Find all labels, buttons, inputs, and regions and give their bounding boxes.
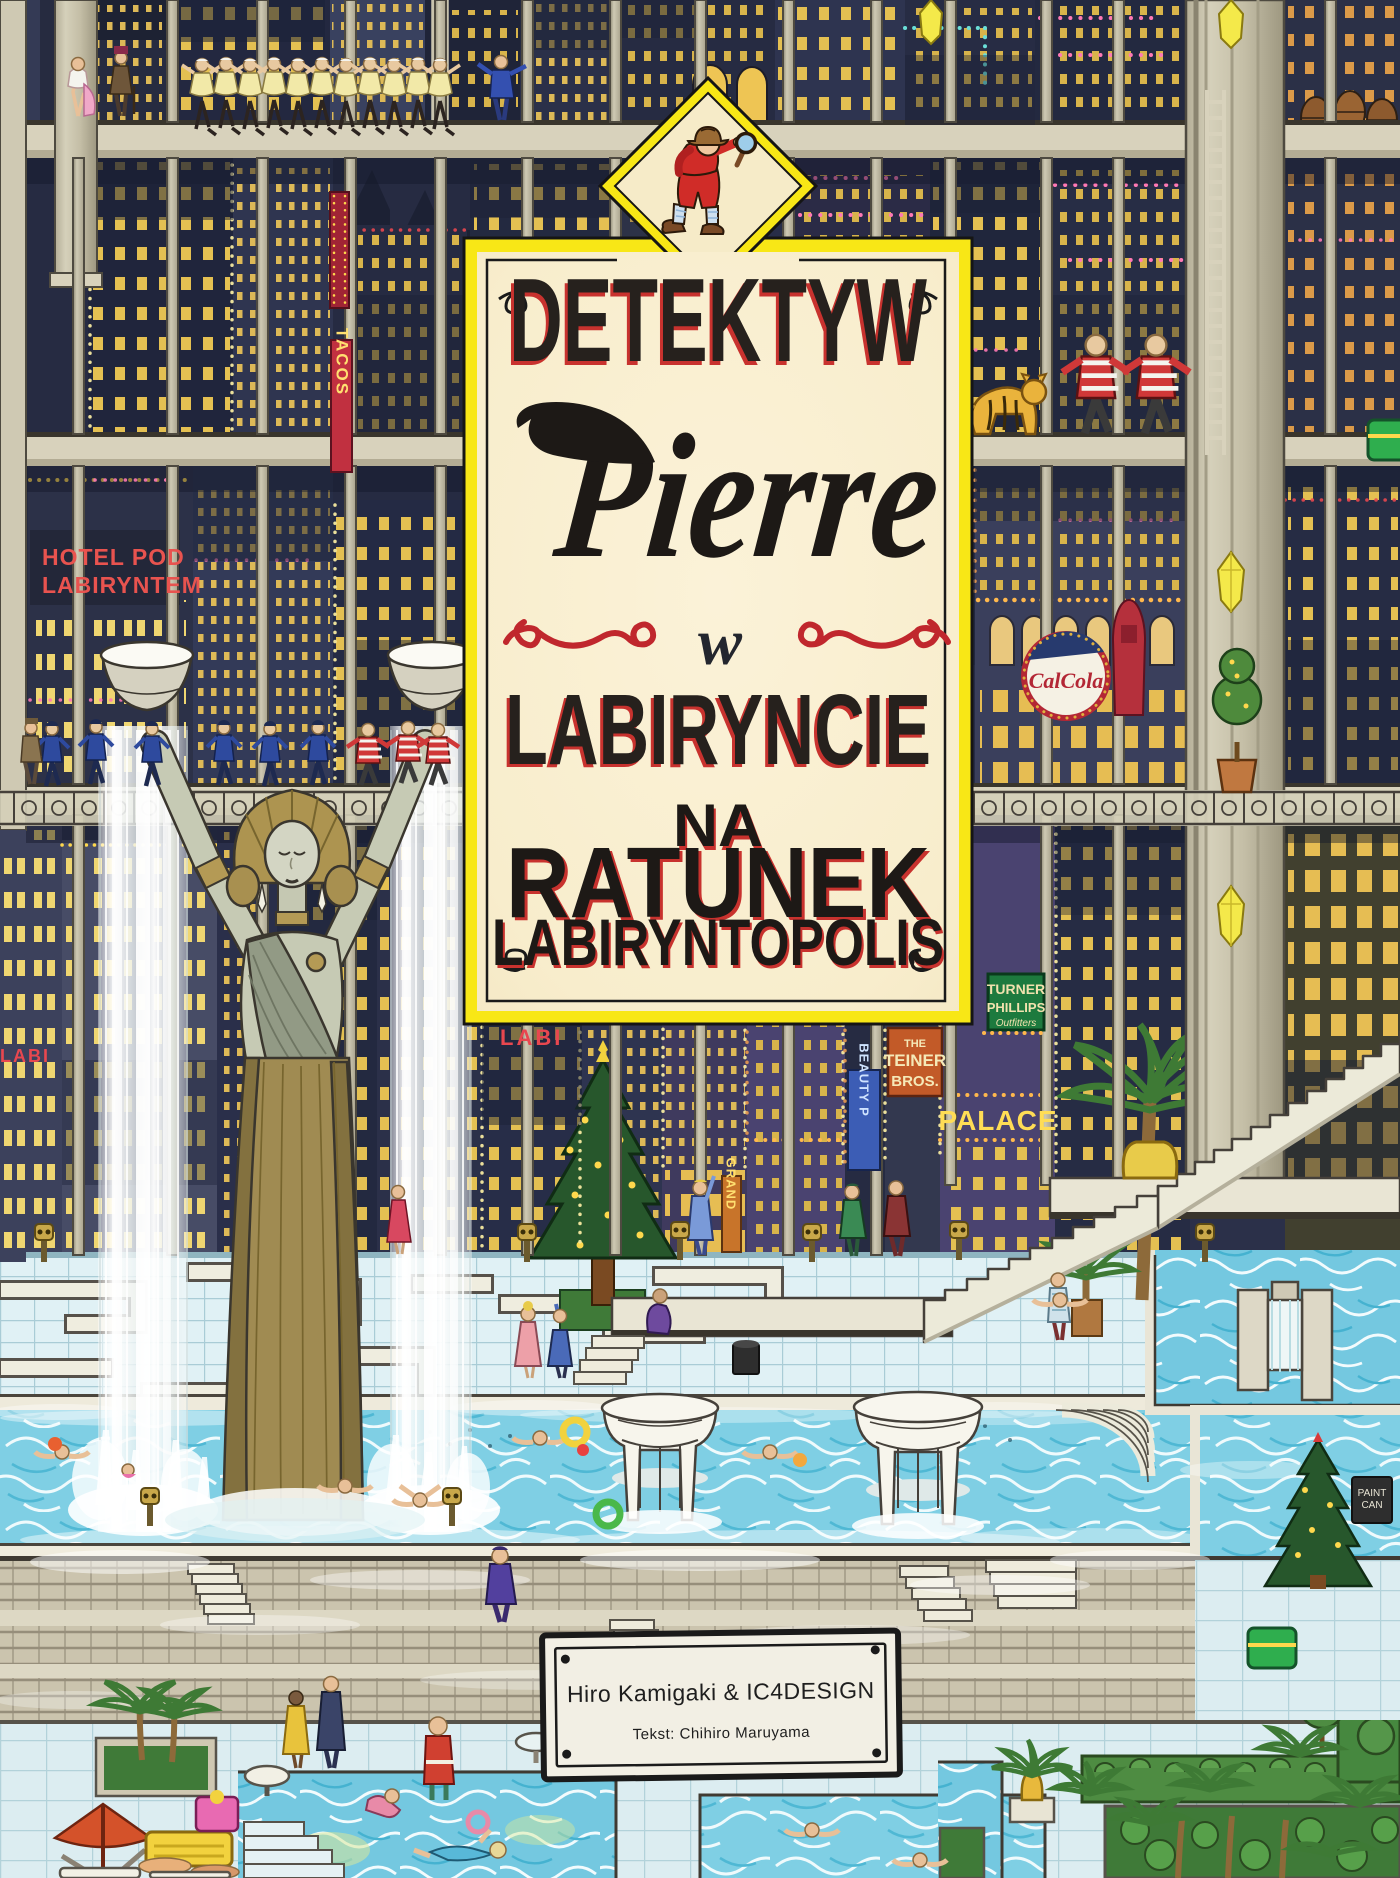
svg-text:w: w [698, 606, 743, 679]
svg-text:CAN: CAN [1361, 1500, 1382, 1511]
svg-text:BROS.: BROS. [891, 1073, 939, 1090]
svg-text:LABI: LABI [0, 1046, 50, 1066]
svg-text:DETEKTYW: DETEKTYW [509, 254, 927, 387]
svg-text:LABIRYNCIE: LABIRYNCIE [505, 674, 931, 786]
svg-text:HOTEL POD: HOTEL POD [42, 544, 185, 570]
svg-text:CalCola: CalCola [1029, 668, 1104, 693]
svg-text:TACOS: TACOS [333, 328, 352, 396]
svg-text:PHILLIPS: PHILLIPS [987, 1000, 1046, 1015]
svg-text:GRAND: GRAND [724, 1158, 739, 1211]
svg-text:LABIRYNTEM: LABIRYNTEM [42, 572, 202, 598]
svg-text:TURNER: TURNER [987, 981, 1045, 997]
svg-text:LABIRYNTOPOLIS: LABIRYNTOPOLIS [492, 905, 944, 979]
svg-text:Tekst: Chihiro Maruyama: Tekst: Chihiro Maruyama [633, 1724, 811, 1743]
svg-text:Outfitters: Outfitters [996, 1018, 1037, 1029]
svg-text:Hiro Kamigaki & IC4DESIGN: Hiro Kamigaki & IC4DESIGN [567, 1677, 875, 1707]
svg-text:PAINT: PAINT [1358, 1488, 1387, 1499]
svg-text:PALACE: PALACE [938, 1105, 1057, 1136]
svg-text:BEAUTY P: BEAUTY P [857, 1043, 872, 1117]
svg-text:LABI: LABI [500, 1025, 563, 1050]
svg-text:TEINER: TEINER [884, 1051, 946, 1070]
svg-text:THE: THE [904, 1038, 926, 1050]
